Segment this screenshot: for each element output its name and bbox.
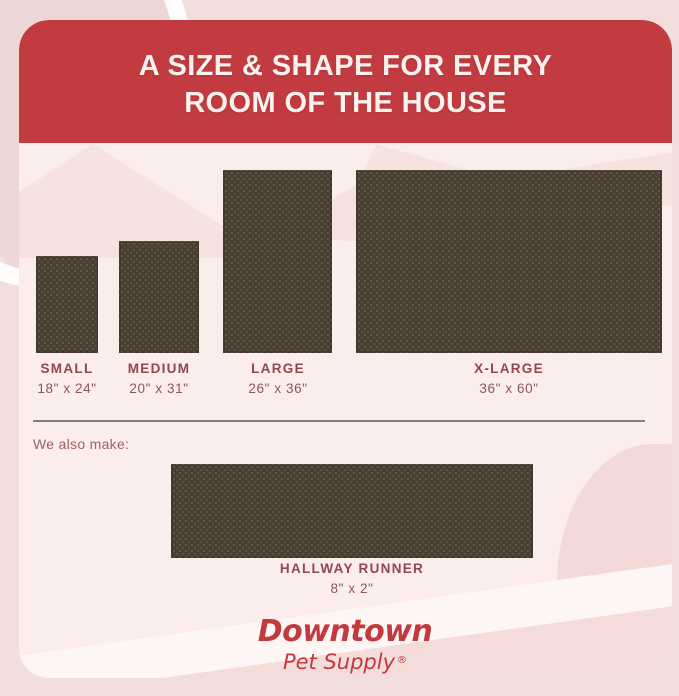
brand-tagline-text: Pet Supply — [283, 650, 395, 674]
page-title-line1: A SIZE & SHAPE FOR EVERY — [139, 48, 553, 85]
registered-trademark-symbol: ® — [397, 655, 407, 666]
medium-size-label: MEDIUM 20" x 31" — [98, 361, 220, 396]
page-title: A SIZE & SHAPE FOR EVERY ROOM OF THE HOU… — [139, 48, 553, 122]
infographic-page: A SIZE & SHAPE FOR EVERY ROOM OF THE HOU… — [0, 0, 679, 696]
large-size-label: LARGE 26" x 36" — [217, 361, 339, 396]
hallway-runner-dimensions: 8" x 2" — [252, 581, 452, 596]
header-banner: A SIZE & SHAPE FOR EVERY ROOM OF THE HOU… — [19, 20, 672, 143]
small-mat-swatch — [36, 256, 98, 353]
large-mat-swatch — [223, 170, 332, 353]
medium-size-name: MEDIUM — [98, 361, 220, 376]
section-divider — [33, 420, 645, 422]
brand-name: Downtown — [145, 614, 545, 649]
x-large-size-name: X-LARGE — [448, 361, 570, 376]
bone-blob-decoration — [557, 444, 672, 678]
brand-logo: Downtown Pet Supply® — [145, 614, 545, 674]
x-large-mat-swatch — [356, 170, 662, 353]
x-large-size-label: X-LARGE 36" x 60" — [448, 361, 570, 396]
medium-mat-swatch — [119, 241, 199, 353]
brand-tagline: Pet Supply® — [145, 650, 545, 674]
hallway-runner-name: HALLWAY RUNNER — [252, 561, 452, 576]
also-make-note: We also make: — [33, 436, 129, 452]
large-size-dimensions: 26" x 36" — [217, 381, 339, 396]
medium-size-dimensions: 20" x 31" — [98, 381, 220, 396]
hallway-runner-swatch — [171, 464, 533, 558]
infographic-card: A SIZE & SHAPE FOR EVERY ROOM OF THE HOU… — [19, 20, 672, 678]
hallway-runner-label: HALLWAY RUNNER 8" x 2" — [252, 561, 452, 596]
page-title-line2: ROOM OF THE HOUSE — [139, 85, 553, 122]
x-large-size-dimensions: 36" x 60" — [448, 381, 570, 396]
large-size-name: LARGE — [217, 361, 339, 376]
